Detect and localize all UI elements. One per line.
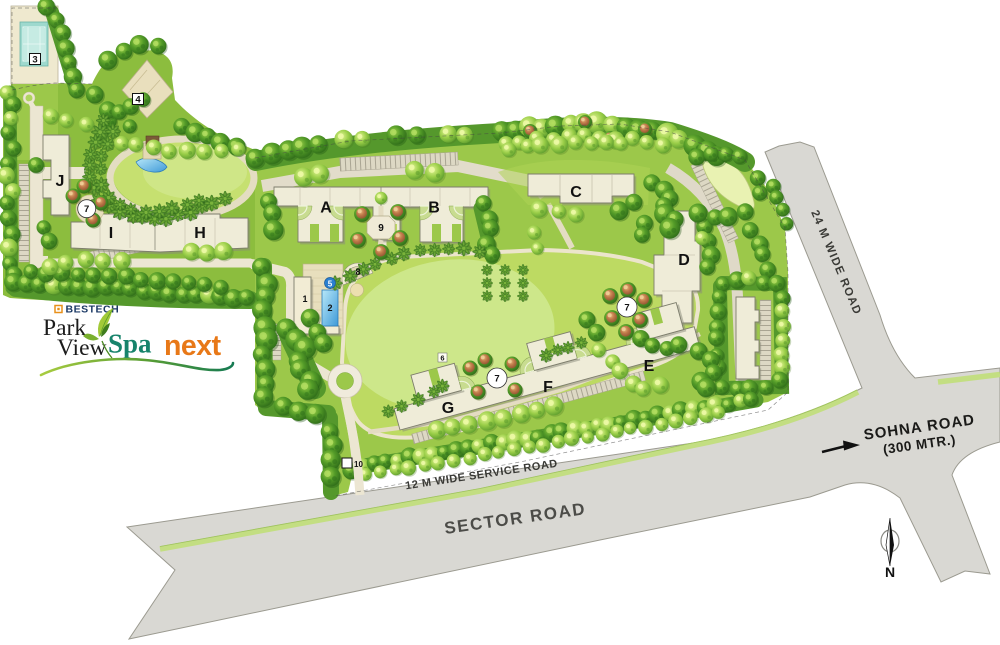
- svg-text:G: G: [442, 400, 454, 417]
- svg-text:B: B: [428, 200, 440, 217]
- svg-text:next: next: [164, 330, 222, 362]
- svg-text:View: View: [57, 335, 107, 361]
- svg-text:1: 1: [302, 294, 307, 304]
- svg-text:8: 8: [355, 267, 360, 277]
- svg-text:3: 3: [32, 55, 37, 66]
- svg-text:C: C: [570, 184, 582, 201]
- svg-text:10: 10: [354, 460, 363, 469]
- svg-text:I: I: [109, 225, 113, 242]
- svg-text:D: D: [678, 252, 690, 269]
- svg-text:J: J: [56, 173, 65, 190]
- svg-text:7: 7: [624, 302, 629, 313]
- svg-text:5: 5: [328, 279, 333, 288]
- svg-text:7: 7: [494, 373, 499, 384]
- svg-text:N: N: [885, 564, 895, 580]
- svg-text:F: F: [543, 379, 553, 396]
- svg-text:H: H: [194, 225, 206, 242]
- svg-text:4: 4: [135, 95, 141, 106]
- svg-text:7: 7: [84, 204, 89, 215]
- svg-text:Spa: Spa: [108, 329, 152, 359]
- svg-text:9: 9: [378, 223, 384, 234]
- svg-text:E: E: [644, 358, 655, 375]
- svg-text:6: 6: [440, 354, 444, 363]
- svg-text:A: A: [320, 200, 332, 217]
- svg-text:2: 2: [327, 303, 332, 313]
